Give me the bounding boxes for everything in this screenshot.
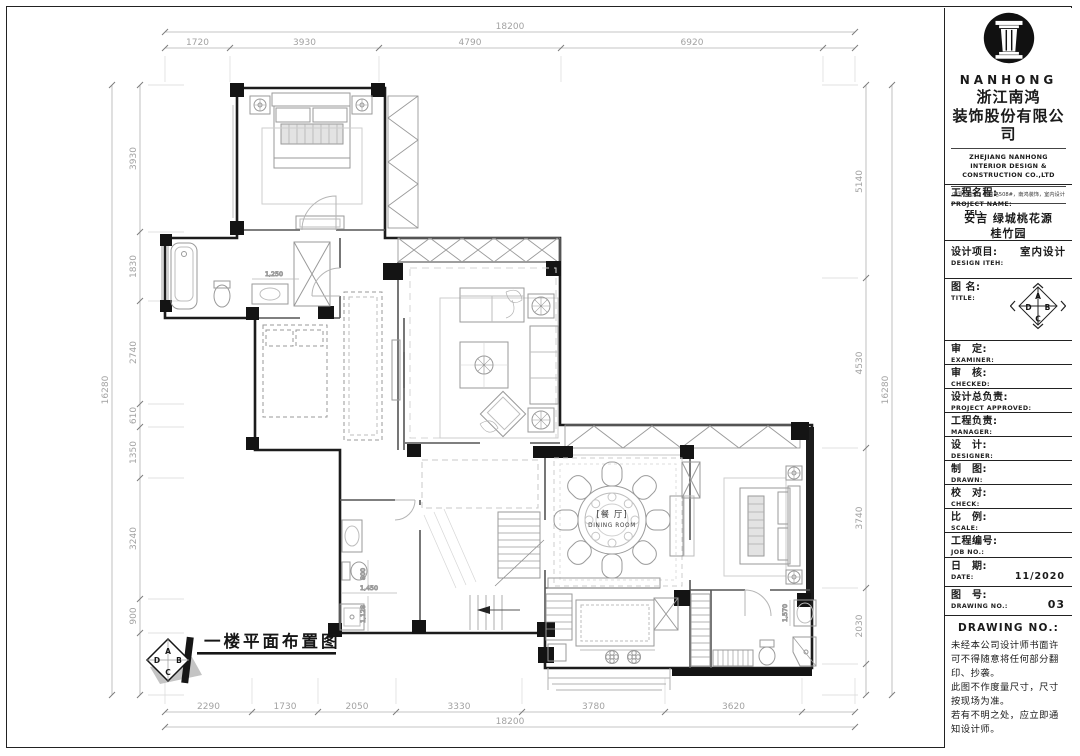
notes-header: DRAWING NO.: bbox=[951, 622, 1066, 634]
design-item-field: 设计项目: 室内设计 DESIGN ITEH: bbox=[945, 240, 1072, 278]
detail-dim: 1,128 bbox=[360, 605, 367, 623]
dimension-label: 3780 bbox=[582, 702, 605, 712]
drawn-cn: 制 图: bbox=[951, 464, 1066, 477]
room-label-en: DINING ROOM bbox=[588, 523, 636, 529]
bathroom-upper: 1,250 bbox=[171, 242, 340, 309]
project-name-field: 工程名程: PROJECT NAME: 安吉 绿城桃花源 桂竹园 bbox=[945, 184, 1072, 240]
dimension-label: 1720 bbox=[186, 38, 209, 48]
note-line-2: 此图不作度量尺寸，尺寸按现场为准。 bbox=[951, 682, 1059, 707]
check-cn: 校 对: bbox=[951, 488, 1066, 501]
job-no-cn: 工程编号: bbox=[951, 536, 1066, 549]
field-drawn: 制 图: DRAWN: bbox=[945, 460, 1072, 484]
dimension-label: 1350 bbox=[129, 441, 139, 464]
title-label-cn: 图 名: bbox=[951, 282, 980, 295]
tb-compass-a: A bbox=[1035, 292, 1041, 301]
dimension-label: 6920 bbox=[681, 38, 704, 48]
date-value: 11/2020 bbox=[1015, 571, 1065, 582]
living-room bbox=[410, 268, 558, 438]
dimension-label: 18200 bbox=[496, 717, 525, 727]
dimension-label: 16280 bbox=[101, 375, 111, 404]
title-block: NANHONG 浙江南鸿 装饰股份有限公司 ZHEJIANG NANHONG I… bbox=[944, 8, 1072, 748]
project-label-en: PROJECT NAME: bbox=[951, 201, 1066, 209]
kitchen bbox=[546, 594, 678, 664]
plan-title-block: A D B C 一楼平面布置图 bbox=[147, 631, 341, 684]
notes-block: DRAWING NO.: 未经本公司设计师书面许可不得随意将任何部分翻印、抄袭。… bbox=[945, 615, 1072, 739]
drawing-sheet: { "title_block": { "brand": "NANHONG", "… bbox=[0, 0, 1080, 756]
bedroom-top bbox=[250, 93, 372, 230]
company-en-line1: ZHEJIANG NANHONG bbox=[969, 153, 1048, 161]
dimension-label: 2740 bbox=[129, 341, 139, 364]
bedroom-right bbox=[682, 462, 802, 584]
dining-room: [餐 厅] DINING ROOM bbox=[548, 458, 694, 588]
design-item-label-cn: 设计项目: bbox=[951, 247, 998, 260]
compass-letter-d: D bbox=[154, 656, 160, 665]
title-label-en: TITLE: bbox=[951, 295, 980, 303]
dimension-label: 16280 bbox=[881, 375, 891, 404]
checked-cn: 审 核: bbox=[951, 368, 1066, 381]
field-date: 日 期: DATE: 11/2020 bbox=[945, 557, 1072, 586]
dimension-label: 1730 bbox=[274, 702, 297, 712]
tb-compass-b: B bbox=[1045, 303, 1051, 312]
detail-dim: 1,570 bbox=[782, 604, 789, 622]
orientation-compass-icon: A B C D bbox=[1010, 282, 1066, 330]
detail-dim: 800 bbox=[360, 568, 367, 580]
field-project-approved: 设计总负责: PROJECT APPROVED: bbox=[945, 388, 1072, 412]
dimension-label: 4790 bbox=[459, 38, 482, 48]
field-checked: 审 核: CHECKED: bbox=[945, 364, 1072, 388]
field-drawing-no: 图 号: DRAWING NO.: 03 bbox=[945, 586, 1072, 615]
compass-letter-b: B bbox=[176, 656, 182, 665]
company-name-cn-2: 装饰股份有限公司 bbox=[951, 108, 1066, 143]
job-no-en: JOB NO.: bbox=[951, 549, 1066, 557]
dimension-chains: 1820017203930479069201820022901730205033… bbox=[101, 22, 895, 730]
project-value-line2: 桂竹园 bbox=[991, 227, 1027, 240]
bathroom-lower-left: 1,450 800 1,128 bbox=[340, 520, 397, 631]
dimension-label: 18200 bbox=[496, 22, 525, 32]
note-line-1: 未经本公司设计师书面许可不得随意将任何部分翻印、抄袭。 bbox=[951, 640, 1059, 679]
dimension-label: 610 bbox=[129, 407, 139, 424]
dimension-label: 3930 bbox=[129, 147, 139, 170]
manager-cn: 工程负责: bbox=[951, 416, 1066, 429]
nanhong-logo-icon bbox=[982, 11, 1036, 65]
dimension-label: 3740 bbox=[855, 506, 865, 529]
dimension-label: 3240 bbox=[129, 527, 139, 550]
dimension-label: 2050 bbox=[346, 702, 369, 712]
brand-name: NANHONG bbox=[951, 73, 1066, 87]
compass-letter-a: A bbox=[165, 647, 171, 656]
project-value-line1: 安吉 绿城桃花源 bbox=[964, 212, 1053, 225]
drawing-no-value: 03 bbox=[1048, 598, 1065, 611]
tb-compass-c: C bbox=[1035, 315, 1041, 324]
windows bbox=[162, 96, 800, 448]
design-item-value: 室内设计 bbox=[1020, 244, 1066, 259]
field-examiner: 审 定: EXAMINER: bbox=[945, 340, 1072, 364]
dimension-label: 5140 bbox=[855, 170, 865, 193]
designer-cn: 设 计: bbox=[951, 440, 1066, 453]
compass-letter-c: C bbox=[165, 668, 171, 677]
project-label-cn: 工程名程: bbox=[951, 188, 1066, 201]
dimension-label: 1830 bbox=[129, 255, 139, 278]
design-item-label-en: DESIGN ITEH: bbox=[951, 260, 1066, 268]
entry-steps bbox=[548, 668, 670, 690]
dimension-label: 2290 bbox=[197, 702, 220, 712]
field-check: 校 对: CHECK: bbox=[945, 484, 1072, 508]
dimension-label: 3620 bbox=[722, 702, 745, 712]
company-name-en: ZHEJIANG NANHONG INTERIOR DESIGN & CONST… bbox=[951, 148, 1066, 181]
room-label-cn: [餐 厅] bbox=[596, 510, 627, 520]
columns bbox=[160, 83, 811, 663]
floor-plan-area: 1820017203930479069201820022901730205033… bbox=[8, 8, 944, 748]
pantry-shelves bbox=[691, 594, 710, 666]
detail-dim: 1,250 bbox=[265, 271, 283, 278]
scale-cn: 比 例: bbox=[951, 512, 1066, 525]
company-en-line2: INTERIOR DESIGN & bbox=[970, 162, 1046, 170]
company-header: NANHONG 浙江南鸿 装饰股份有限公司 ZHEJIANG NANHONG I… bbox=[945, 8, 1072, 184]
dimension-label: 2030 bbox=[855, 614, 865, 637]
furniture: 1,250 bbox=[171, 93, 816, 690]
dimension-label: 900 bbox=[129, 607, 139, 624]
company-en-line3: CONSTRUCTION CO.,LTD bbox=[962, 171, 1055, 179]
dimension-label: 4530 bbox=[855, 351, 865, 374]
field-manager: 工程负责: MANAGER: bbox=[945, 412, 1072, 436]
field-job-no: 工程编号: JOB NO.: bbox=[945, 532, 1072, 557]
dimension-label: 3330 bbox=[448, 702, 471, 712]
title-underline bbox=[197, 652, 336, 655]
stairs bbox=[395, 460, 544, 630]
field-scale: 比 例: SCALE: bbox=[945, 508, 1072, 532]
detail-dim: 1,450 bbox=[360, 585, 378, 592]
dimension-label: 3930 bbox=[293, 38, 316, 48]
note-line-3: 若有不明之处，应立即通知设计师。 bbox=[951, 710, 1059, 735]
drawing-title-field: 图 名: TITLE: A B C D bbox=[945, 278, 1072, 340]
examiner-cn: 审 定: bbox=[951, 344, 1066, 357]
company-name-cn-1: 浙江南鸿 bbox=[951, 89, 1066, 106]
field-designer: 设 计: DESIGNER: bbox=[945, 436, 1072, 460]
tb-compass-d: D bbox=[1025, 303, 1031, 312]
plan-title: 一楼平面布置图 bbox=[204, 631, 341, 651]
floor-plan-svg: 1820017203930479069201820022901730205033… bbox=[8, 8, 944, 748]
approved-cn: 设计总负责: bbox=[951, 392, 1066, 405]
